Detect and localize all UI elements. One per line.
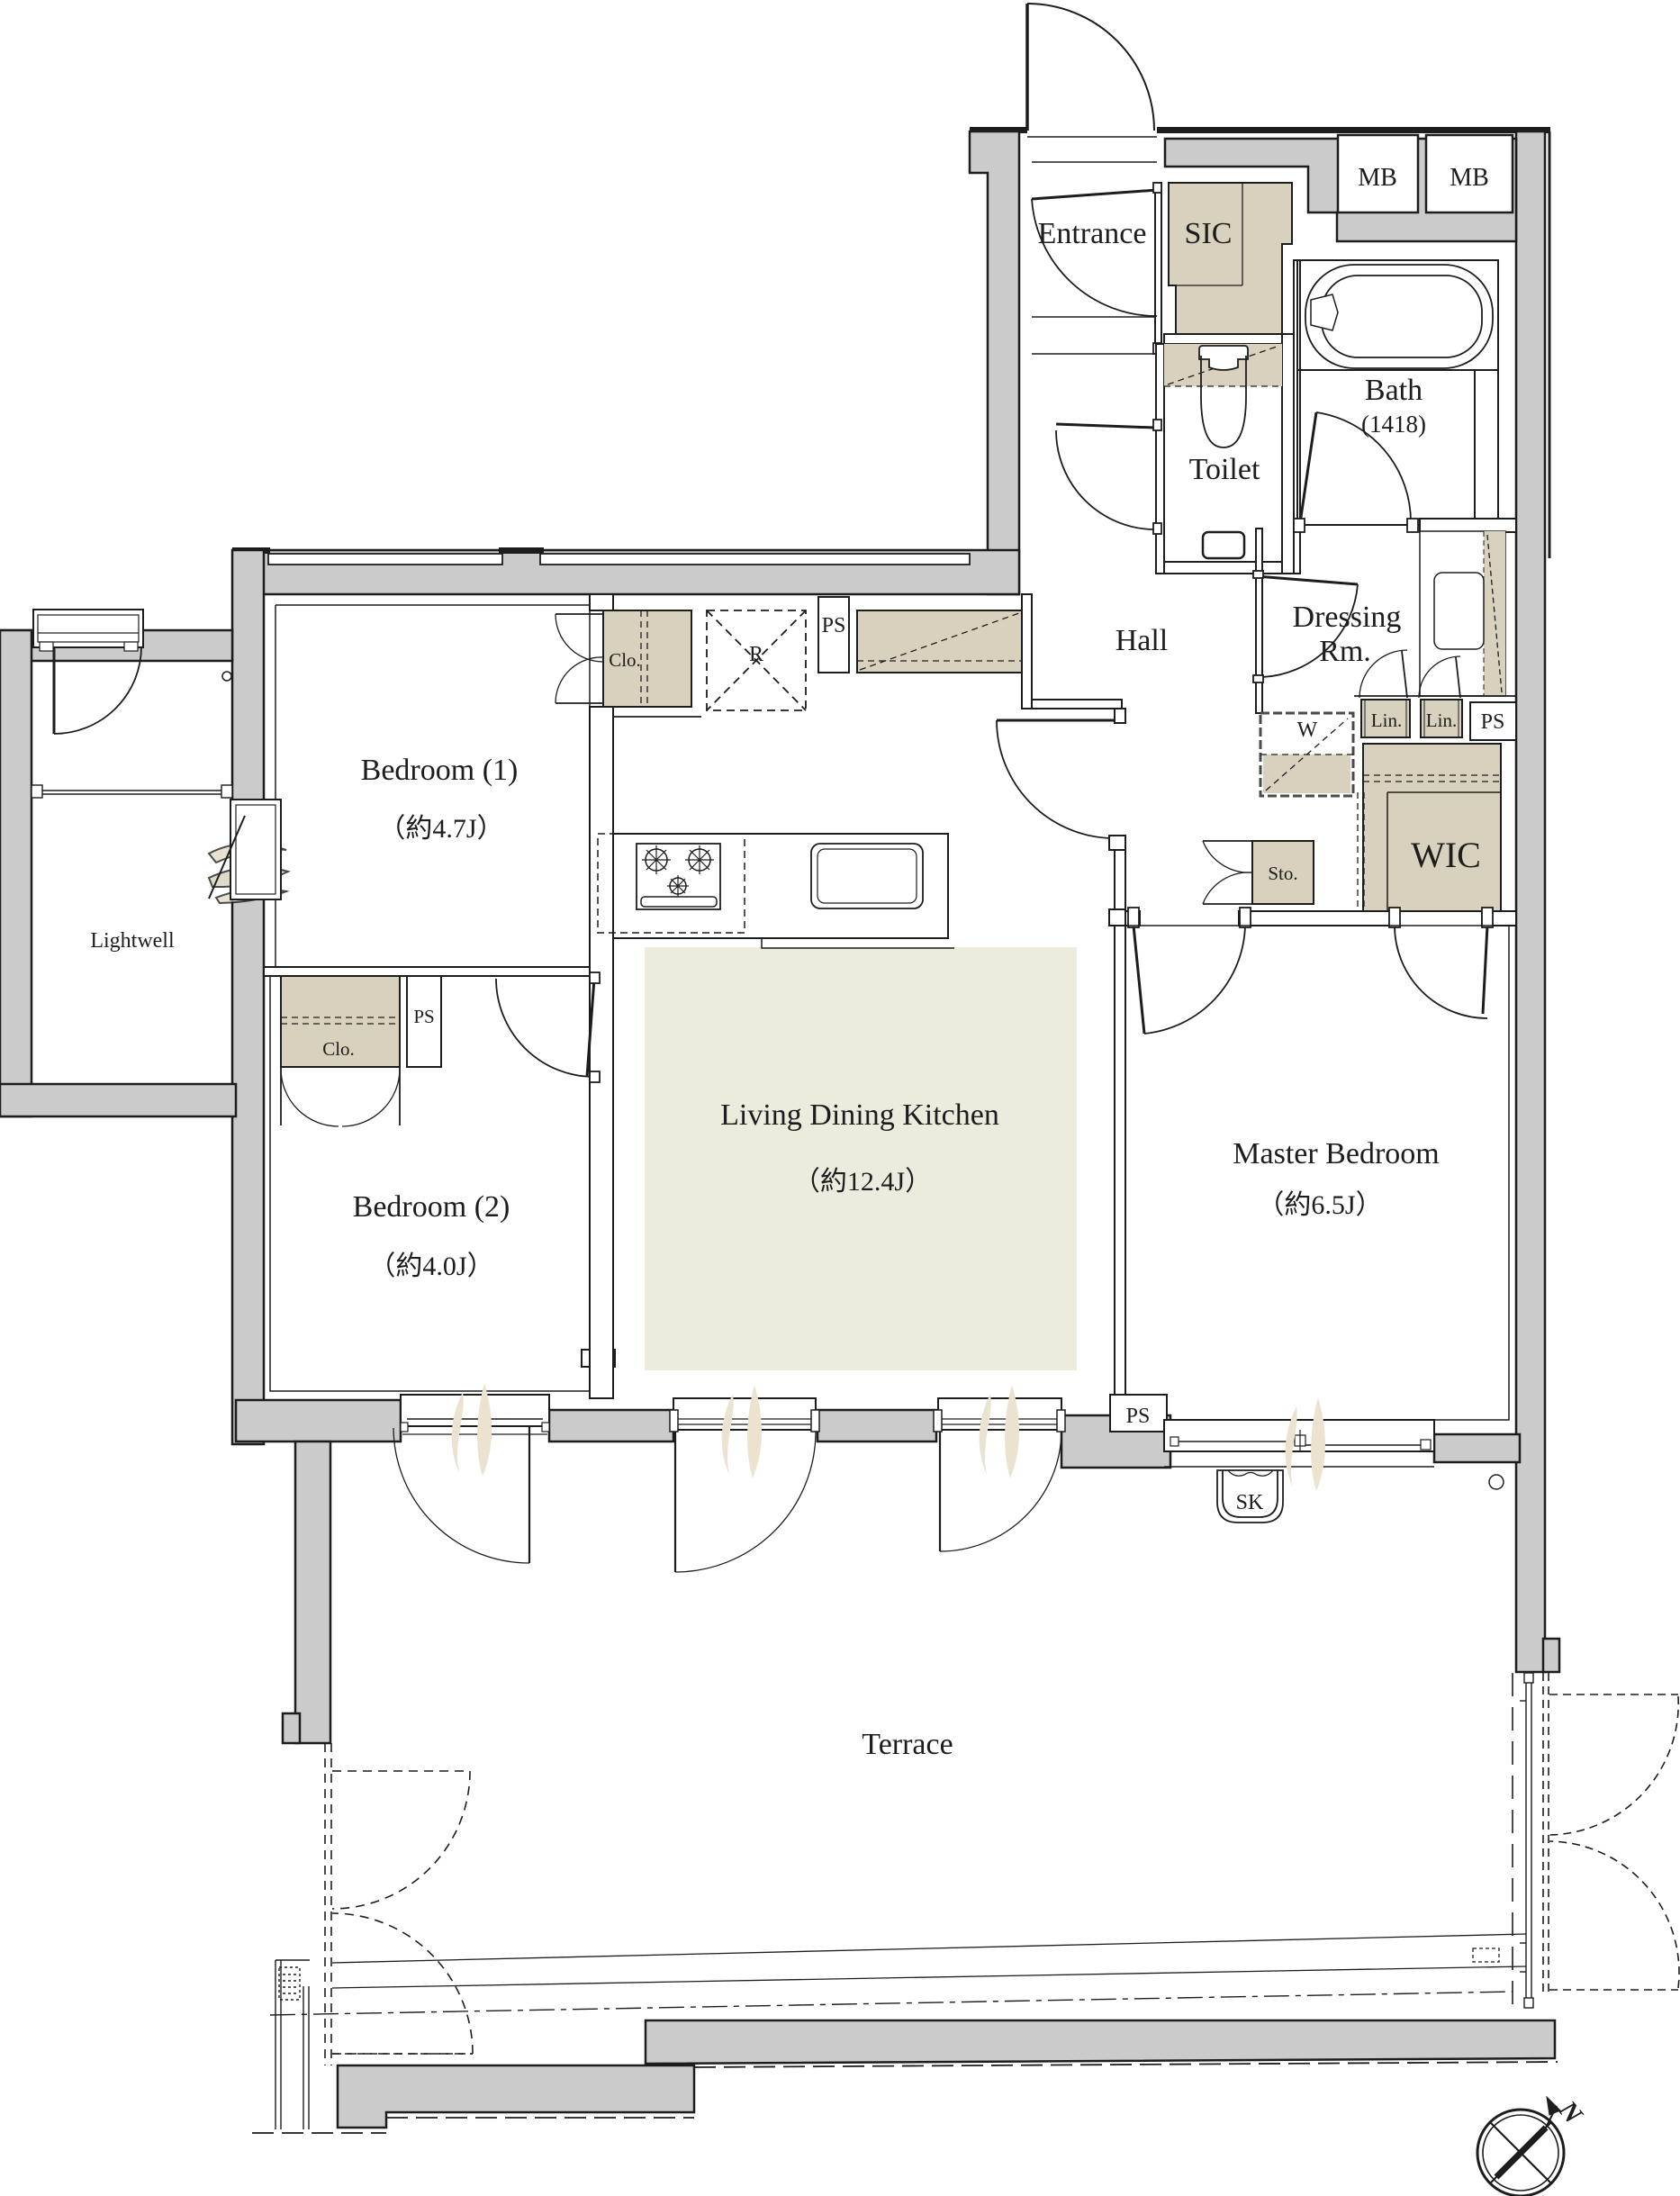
svg-text:Lin.: Lin. <box>1371 709 1402 731</box>
svg-text:MB: MB <box>1450 164 1489 192</box>
svg-text:（約4.7J）: （約4.7J） <box>378 814 503 844</box>
svg-text:SIC: SIC <box>1185 217 1233 250</box>
svg-text:Clo.: Clo. <box>322 1038 355 1060</box>
svg-text:Bath: Bath <box>1365 374 1423 407</box>
svg-text:PS: PS <box>1481 710 1505 734</box>
svg-text:Sto.: Sto. <box>1268 863 1297 884</box>
svg-text:WIC: WIC <box>1411 835 1481 875</box>
svg-text:Master Bedroom: Master Bedroom <box>1233 1137 1439 1170</box>
svg-text:Bedroom (2): Bedroom (2) <box>353 1190 510 1224</box>
svg-text:Toilet: Toilet <box>1189 453 1260 486</box>
svg-text:MB: MB <box>1358 164 1397 192</box>
svg-text:（約6.5J）: （約6.5J） <box>1257 1190 1382 1220</box>
svg-text:Bedroom (1): Bedroom (1) <box>361 754 519 787</box>
svg-text:(1418): (1418) <box>1361 411 1426 438</box>
svg-text:PS: PS <box>413 1006 434 1027</box>
svg-text:SK: SK <box>1236 1491 1264 1514</box>
svg-text:（約12.4J）: （約12.4J） <box>793 1167 932 1197</box>
svg-text:Lightwell: Lightwell <box>90 929 175 953</box>
svg-text:Lin.: Lin. <box>1426 709 1457 731</box>
svg-text:Terrace: Terrace <box>862 1728 953 1761</box>
svg-text:PS: PS <box>1126 1405 1151 1428</box>
svg-text:Entrance: Entrance <box>1038 217 1147 250</box>
svg-text:PS: PS <box>822 614 846 637</box>
svg-text:Clo.: Clo. <box>609 649 641 671</box>
svg-text:R: R <box>749 643 763 666</box>
svg-text:Dressing: Dressing <box>1293 601 1402 634</box>
svg-text:Rm.: Rm. <box>1319 635 1371 668</box>
svg-text:Living Dining Kitchen: Living Dining Kitchen <box>720 1098 999 1132</box>
svg-text:W: W <box>1297 718 1318 742</box>
svg-text:（約4.0J）: （約4.0J） <box>368 1252 493 1281</box>
svg-text:Hall: Hall <box>1115 624 1169 657</box>
